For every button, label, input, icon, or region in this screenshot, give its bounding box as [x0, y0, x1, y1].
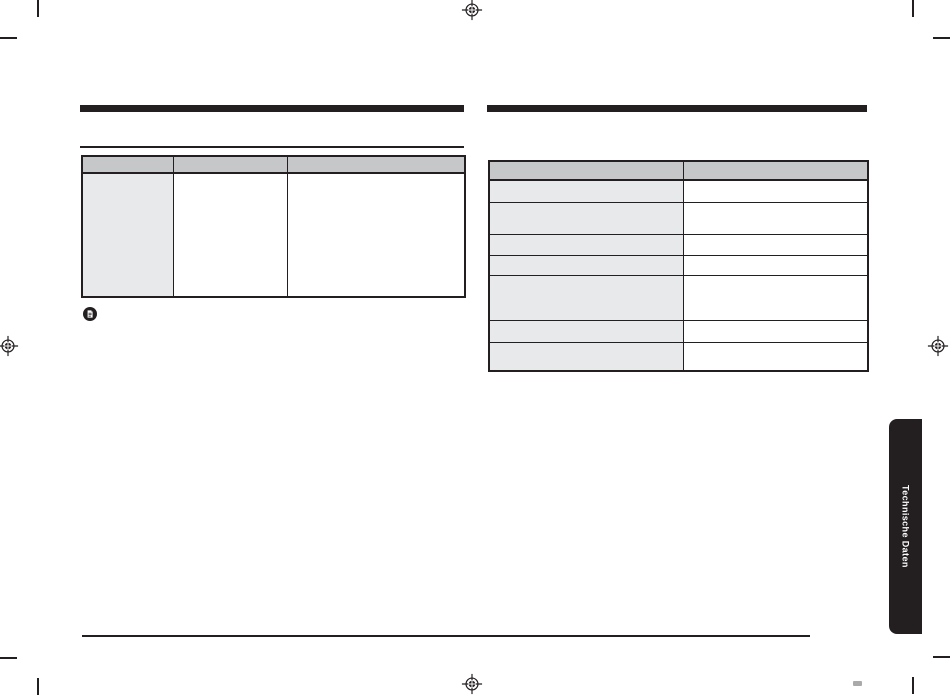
registration-mark-icon	[0, 335, 19, 357]
table-cell	[287, 173, 465, 297]
crop-mark-top-left-vertical	[37, 0, 39, 17]
table-cell	[489, 276, 683, 321]
table-cell	[683, 256, 868, 276]
crop-mark-top-right-horizontal	[933, 37, 950, 39]
left-section-heading-bar	[80, 105, 464, 112]
table-row	[489, 180, 868, 203]
crop-mark-bottom-right-vertical	[912, 677, 914, 694]
table-header-row	[82, 156, 465, 173]
table-cell	[489, 203, 683, 235]
table-row	[489, 256, 868, 276]
crop-mark-bottom-left-vertical	[37, 678, 39, 695]
crop-mark-top-right-vertical	[912, 0, 914, 17]
table-cell	[683, 343, 868, 372]
table-cell	[683, 235, 868, 256]
table-cell	[489, 343, 683, 372]
registration-mark-icon	[461, 0, 483, 21]
table-header-cell	[287, 156, 465, 173]
table-header-cell	[82, 156, 173, 173]
footer-print-mark	[853, 681, 862, 686]
table-row	[82, 173, 465, 297]
crop-mark-bottom-right-horizontal	[933, 656, 950, 658]
table-row	[489, 343, 868, 372]
table-cell	[489, 321, 683, 343]
left-section-subrule	[80, 146, 464, 148]
right-section-heading-bar	[487, 105, 867, 112]
table-cell	[683, 276, 868, 321]
left-table	[81, 155, 466, 298]
table-cell	[82, 173, 173, 297]
registration-mark-icon	[927, 335, 949, 357]
table-cell	[489, 180, 683, 203]
crop-mark-bottom-left-horizontal	[0, 657, 17, 659]
table-cell	[489, 235, 683, 256]
table-cell	[173, 173, 287, 297]
table-header-cell	[489, 161, 683, 180]
chapter-tab-label: Technische Daten	[901, 485, 911, 568]
crop-mark-top-left-horizontal	[0, 37, 17, 39]
table-cell	[683, 203, 868, 235]
document-page: Technische Daten	[0, 0, 950, 695]
registration-mark-icon	[461, 673, 483, 695]
chapter-tab-technische-daten: Technische Daten	[889, 419, 922, 634]
table-row	[489, 203, 868, 235]
table-cell	[489, 256, 683, 276]
table-row	[489, 276, 868, 321]
table-header-row	[489, 161, 868, 180]
table-header-cell	[683, 161, 868, 180]
right-table	[488, 160, 869, 372]
table-header-cell	[173, 156, 287, 173]
note-icon	[83, 307, 97, 321]
table-row	[489, 235, 868, 256]
table-cell	[683, 321, 868, 343]
table-row	[489, 321, 868, 343]
table-cell	[683, 180, 868, 203]
footer-rule	[82, 635, 810, 637]
